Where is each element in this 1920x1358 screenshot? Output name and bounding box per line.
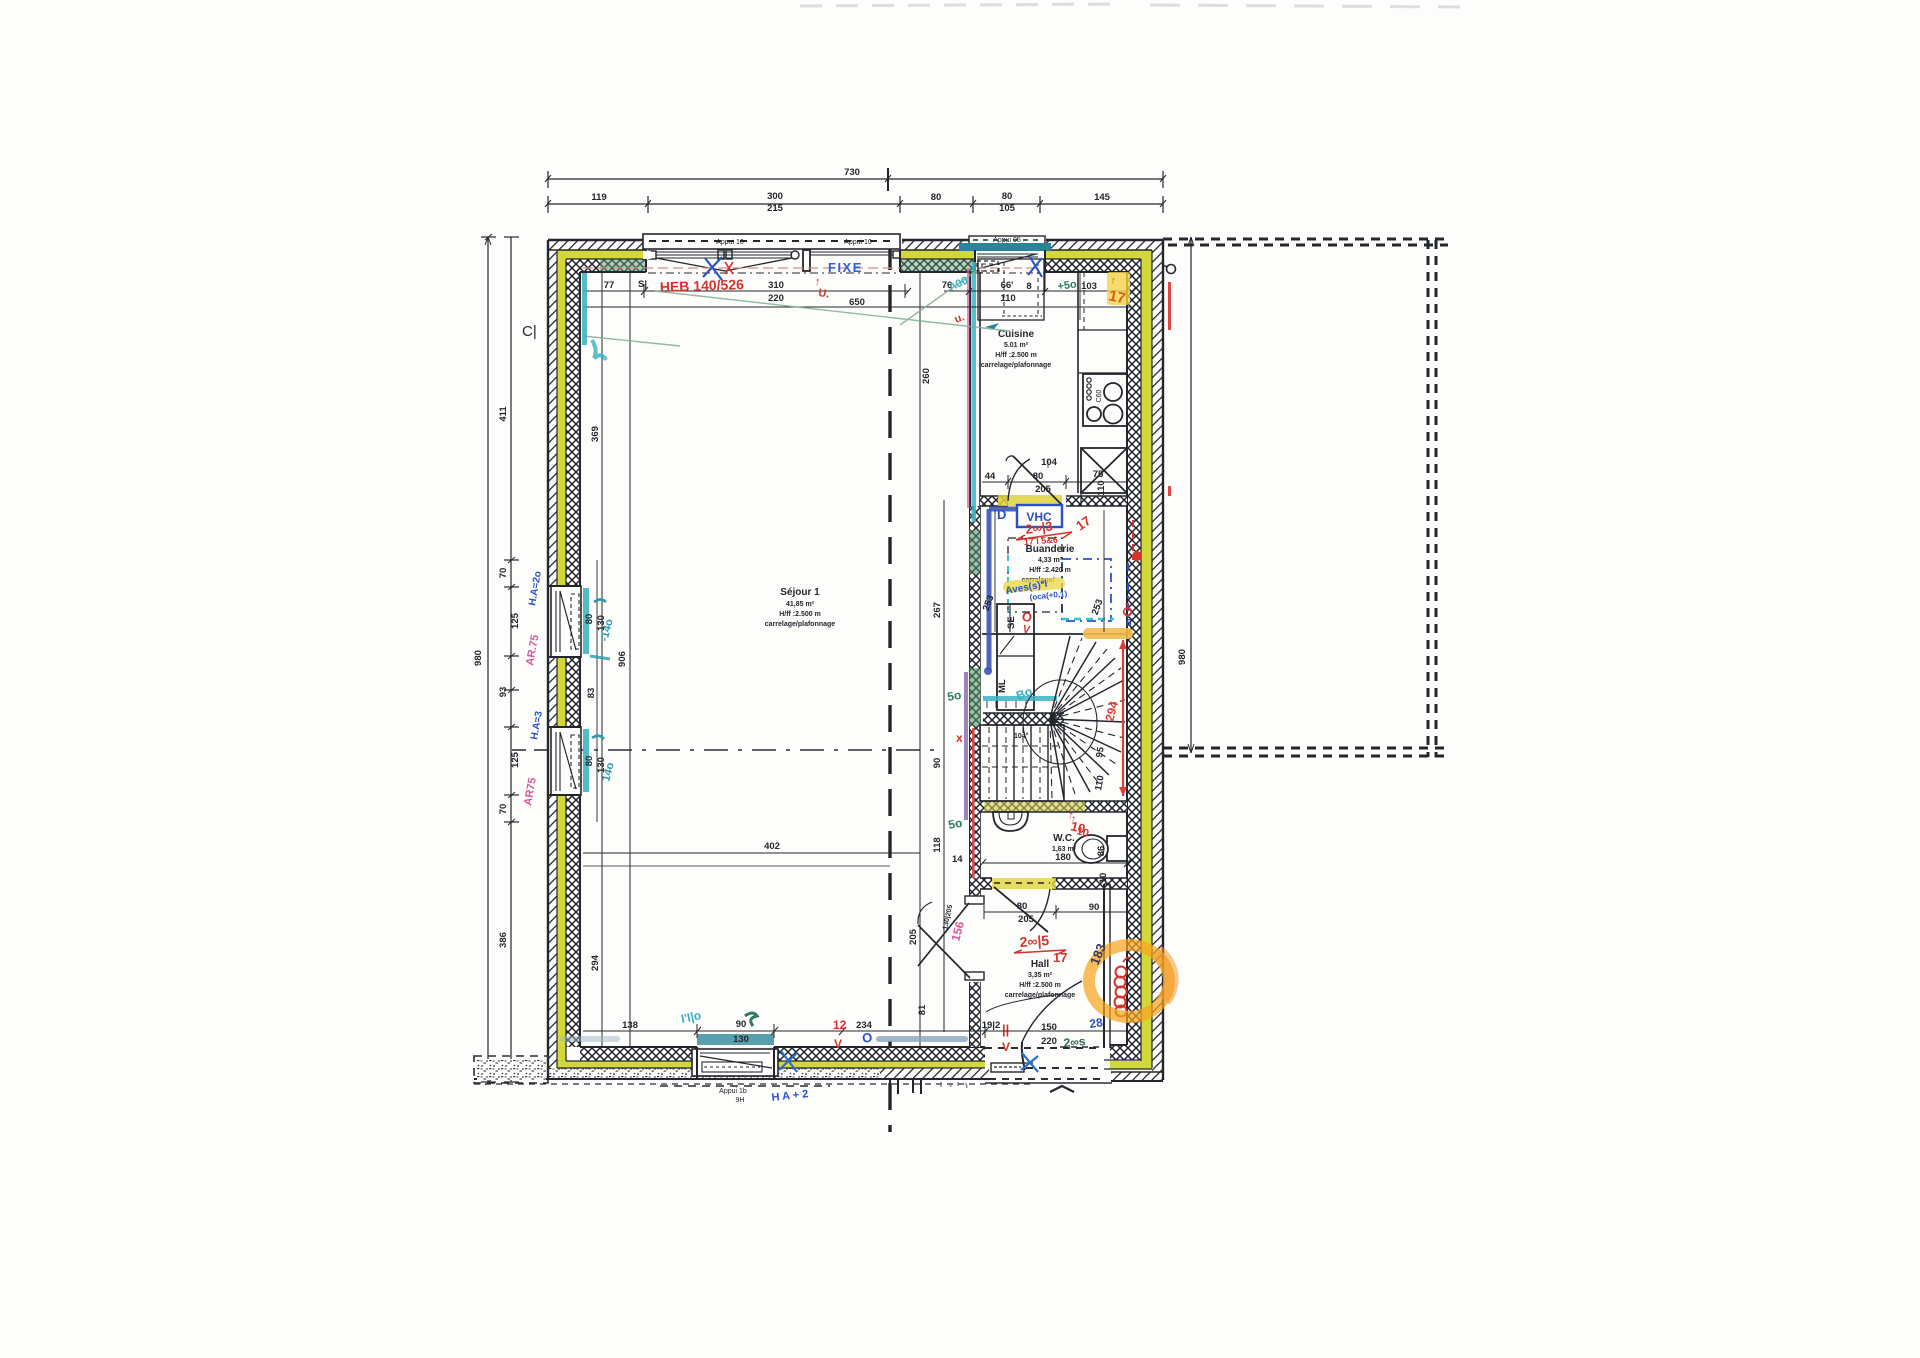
svg-text:104°: 104° xyxy=(1014,732,1029,740)
svg-text:180: 180 xyxy=(1055,852,1071,863)
svg-text:80: 80 xyxy=(1002,191,1013,202)
svg-text:SE: SE xyxy=(1006,616,1017,629)
svg-text:205: 205 xyxy=(908,928,919,945)
svg-text:86: 86 xyxy=(1096,846,1107,857)
svg-text:205: 205 xyxy=(1018,914,1035,925)
svg-text:386: 386 xyxy=(498,932,509,948)
svg-text:C|: C| xyxy=(522,323,537,340)
svg-text:310: 310 xyxy=(768,280,784,291)
svg-text:294: 294 xyxy=(590,954,601,971)
svg-text:9H: 9H xyxy=(736,1097,745,1104)
svg-text:104: 104 xyxy=(1041,457,1058,468)
svg-text:205: 205 xyxy=(1035,484,1052,495)
svg-text:369: 369 xyxy=(590,426,601,442)
svg-text:220: 220 xyxy=(768,293,784,304)
svg-text:980: 980 xyxy=(473,650,484,666)
svg-text:2∞|5: 2∞|5 xyxy=(1019,932,1050,950)
svg-text:28: 28 xyxy=(1088,1015,1103,1031)
svg-text:44: 44 xyxy=(985,471,996,482)
svg-text:41,85 m²: 41,85 m² xyxy=(786,601,815,608)
svg-text:81: 81 xyxy=(917,1004,928,1015)
svg-text:3,35 m²: 3,35 m² xyxy=(1028,972,1053,979)
svg-text:80: 80 xyxy=(1033,471,1044,482)
svg-text:119: 119 xyxy=(591,192,606,203)
svg-text:carrelage/plafonnage: carrelage/plafonnage xyxy=(981,362,1052,369)
svg-text:H/ff :2.500 m: H/ff :2.500 m xyxy=(779,611,821,618)
svg-text:138: 138 xyxy=(622,1020,638,1031)
svg-text:93: 93 xyxy=(498,687,509,698)
svg-text:125: 125 xyxy=(510,751,521,768)
svg-text:x: x xyxy=(956,731,963,745)
svg-text:411: 411 xyxy=(498,406,509,422)
svg-text:5o: 5o xyxy=(946,688,962,704)
svg-text:730: 730 xyxy=(844,167,860,178)
svg-text:10: 10 xyxy=(1098,873,1109,884)
svg-text:Appui 10: Appui 10 xyxy=(844,239,872,246)
svg-text:12: 12 xyxy=(833,1018,847,1032)
svg-text:77: 77 xyxy=(604,280,615,291)
svg-text:103: 103 xyxy=(1081,281,1097,292)
svg-text:H/ff :2.420 m: H/ff :2.420 m xyxy=(1029,567,1071,574)
svg-text:980: 980 xyxy=(1177,649,1188,665)
svg-text:carrelage/plafonnage: carrelage/plafonnage xyxy=(765,621,836,628)
svg-text:FIXE: FIXE xyxy=(828,260,863,275)
svg-text:80: 80 xyxy=(931,192,942,203)
svg-text:267: 267 xyxy=(932,602,943,618)
svg-text:260: 260 xyxy=(921,368,932,384)
svg-text:Appui 05: Appui 05 xyxy=(993,237,1021,244)
svg-text:C60: C60 xyxy=(1096,389,1103,402)
svg-text:70: 70 xyxy=(498,568,509,579)
svg-text:90: 90 xyxy=(1089,902,1100,913)
svg-text:80: 80 xyxy=(1017,901,1028,912)
svg-text:Séjour 1: Séjour 1 xyxy=(780,587,820,598)
svg-text:90: 90 xyxy=(932,758,943,769)
svg-text:Appui 1b: Appui 1b xyxy=(719,1088,747,1095)
svg-text:66': 66' xyxy=(1001,280,1014,291)
svg-text:Appui 10: Appui 10 xyxy=(716,239,744,246)
svg-text:145: 145 xyxy=(1094,192,1111,203)
svg-text:402: 402 xyxy=(764,841,780,852)
svg-text:||: || xyxy=(1002,1022,1009,1037)
svg-text:H/ff :2.500 m: H/ff :2.500 m xyxy=(995,352,1037,359)
svg-text:H/ff :2.500 m: H/ff :2.500 m xyxy=(1019,982,1061,989)
svg-text:W.C.: W.C. xyxy=(1053,833,1075,844)
svg-text:80: 80 xyxy=(584,756,595,767)
svg-text:80: 80 xyxy=(584,614,595,625)
svg-text:300: 300 xyxy=(767,191,783,202)
svg-text:S|: S| xyxy=(638,279,647,290)
svg-text:U.: U. xyxy=(818,287,831,300)
svg-text:125: 125 xyxy=(510,612,521,629)
svg-text:70: 70 xyxy=(498,804,509,815)
svg-text:110: 110 xyxy=(1000,293,1015,304)
svg-text:215: 215 xyxy=(767,203,784,214)
svg-text:110: 110 xyxy=(1096,480,1107,495)
svg-text:17: 17 xyxy=(1107,287,1127,307)
svg-text:75: 75 xyxy=(1093,469,1104,480)
svg-text:5.01 m²: 5.01 m² xyxy=(1004,342,1029,349)
svg-text:105: 105 xyxy=(999,203,1016,214)
svg-text:HEB 140/526: HEB 140/526 xyxy=(660,276,745,295)
svg-text:Hall: Hall xyxy=(1031,959,1050,970)
svg-text:ML: ML xyxy=(997,679,1008,693)
svg-text:carrelage/plafonnage: carrelage/plafonnage xyxy=(1005,992,1076,999)
svg-text:V: V xyxy=(1002,1040,1010,1054)
svg-text:118: 118 xyxy=(932,837,943,852)
svg-text:90: 90 xyxy=(736,1019,747,1030)
svg-text:5o: 5o xyxy=(947,816,963,832)
svg-text:220: 220 xyxy=(1041,1036,1057,1047)
svg-text:V: V xyxy=(834,1037,842,1051)
svg-text:906: 906 xyxy=(617,651,628,667)
svg-text:8: 8 xyxy=(1026,281,1031,292)
svg-text:19|2: 19|2 xyxy=(982,1020,1001,1031)
svg-text:4,33 m²: 4,33 m² xyxy=(1038,557,1063,564)
svg-text:6: 6 xyxy=(1126,618,1132,629)
svg-text:83: 83 xyxy=(586,688,597,699)
svg-text:130: 130 xyxy=(733,1034,749,1045)
svg-text:14: 14 xyxy=(952,854,963,865)
svg-text:650: 650 xyxy=(849,297,865,308)
